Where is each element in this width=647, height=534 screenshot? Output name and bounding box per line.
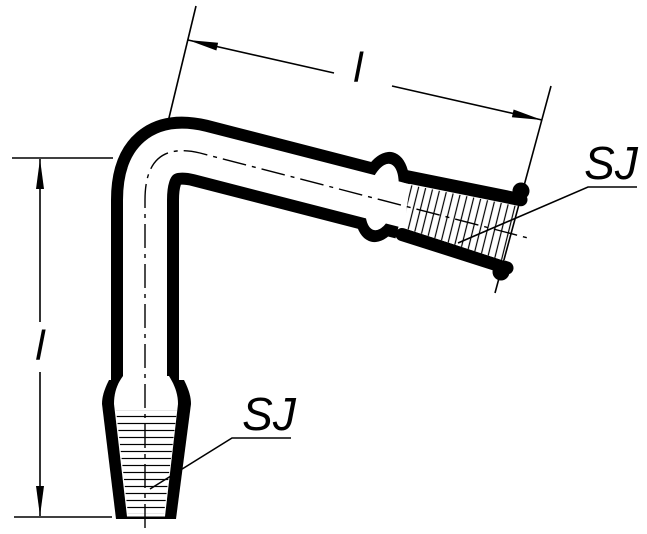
bottom-joint-cone xyxy=(102,376,191,519)
glass-adapter-diagram: l l SJ SJ xyxy=(0,0,647,534)
sj-label-top: SJ xyxy=(584,137,639,189)
sj-label-bottom: SJ xyxy=(242,388,297,440)
technical-drawing-page: l l SJ SJ xyxy=(0,0,647,534)
paper-background xyxy=(0,0,647,534)
